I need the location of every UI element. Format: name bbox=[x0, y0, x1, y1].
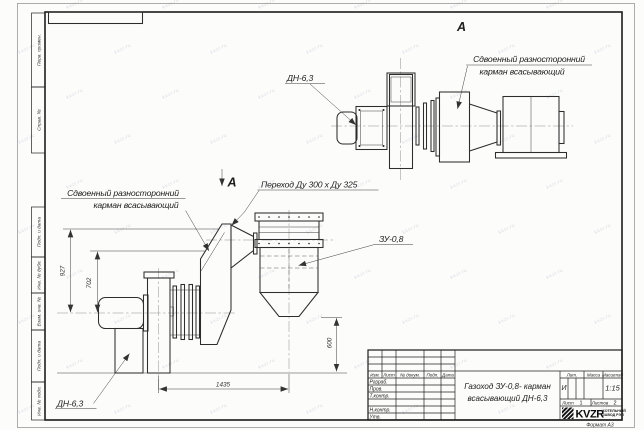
pocket-label-1: Сдвоенный разносторонний bbox=[67, 188, 179, 198]
compensator bbox=[173, 286, 177, 338]
tb-header-doc: № докум. bbox=[400, 372, 420, 377]
collector-base-top bbox=[496, 153, 567, 159]
kvzr-logo-text: KVZR bbox=[576, 409, 605, 421]
tb-row-nkontr: Н.контр. bbox=[370, 407, 391, 413]
view-a: А ДН-6,3 Сдвоенный разносторонний карман… bbox=[285, 20, 592, 182]
drawing-sheet: kvzr.rukvzr.rukvzr.rukvzr.rukvzr.rukvzr.… bbox=[0, 0, 644, 430]
kvzr-logo: KVZR КОТЕЛЬНЫЙ ЗАВОД РЭП bbox=[562, 408, 626, 421]
tb-header-list: Лист bbox=[382, 372, 395, 377]
view-a-pocket-label-1: Сдвоенный разносторонний bbox=[473, 54, 585, 64]
suction-pocket bbox=[201, 224, 232, 345]
tb-header-podp: Подп. bbox=[427, 372, 439, 377]
drawing-canvas: Перв. примен. Справ. № Подп. и дата Инв.… bbox=[0, 0, 644, 430]
transition-label: Переход Ду 300 х Ду 325 bbox=[261, 180, 358, 190]
transition-cone-top bbox=[470, 104, 498, 151]
format-label: Формат А3 bbox=[586, 422, 614, 428]
view-arrow-marker: А bbox=[227, 176, 237, 190]
tb-lit-label: Лит. bbox=[566, 372, 578, 377]
tb-sheets-label: Листов bbox=[591, 400, 609, 405]
view-a-marker: А bbox=[456, 20, 466, 34]
compensator-top bbox=[416, 107, 419, 145]
transition-cone bbox=[231, 225, 254, 268]
tb-sheets-value: 2 bbox=[613, 401, 616, 407]
stamp-inv-podl: Инв. № подл. bbox=[37, 386, 43, 416]
tb-header-izm: Изм. bbox=[370, 372, 380, 377]
company-name-line2: ЗАВОД РЭП bbox=[603, 413, 625, 417]
tb-scale-label: Масштаб bbox=[602, 372, 623, 377]
tb-scale-value: 1:15 bbox=[605, 384, 620, 393]
stamp-vzam-inv: Взам. инв. № bbox=[37, 297, 43, 327]
stamp-podp-data-1: Подп. и дата bbox=[37, 217, 43, 247]
tb-row-prov: Пров. bbox=[370, 386, 383, 392]
stamp-sprav-no: Справ. № bbox=[37, 109, 43, 131]
tb-row-utv: Утв. bbox=[370, 414, 381, 420]
pocket-label-2: карман всасывающий bbox=[93, 200, 178, 210]
stamp-podp-data-2: Подп. и дата bbox=[37, 341, 43, 371]
view-a-pocket-label-2: карман всасывающий bbox=[479, 67, 564, 77]
main-view: А Сдвоенный разносторонний карман всасыв… bbox=[55, 169, 413, 409]
tb-row-tkontr: Т.контр. bbox=[370, 393, 390, 399]
dim-927: 927 bbox=[60, 265, 67, 276]
tb-lit-value: И bbox=[561, 385, 567, 392]
tb-sheet-label: Лист bbox=[561, 400, 574, 405]
tb-title-line2: всасывающий ДН-6,3 bbox=[468, 394, 548, 403]
view-a-fan-label: ДН-6,3 bbox=[286, 73, 314, 83]
kvzr-logo-icon bbox=[562, 408, 574, 420]
dim-1435: 1435 bbox=[216, 382, 231, 389]
stamp-inv-dubl: Инв. № дубл. bbox=[37, 260, 43, 290]
tb-row-razrab: Разраб. bbox=[370, 379, 388, 385]
tb-sheet-value: 1 bbox=[579, 401, 582, 407]
fan-label: ДН-6,3 bbox=[56, 399, 84, 409]
suction-pocket-top bbox=[440, 92, 470, 162]
stamp-perv-primen: Перв. примен. bbox=[37, 34, 43, 66]
tb-header-data: Дата bbox=[441, 372, 454, 377]
tb-mass-label: Масса bbox=[587, 372, 601, 377]
dim-600: 600 bbox=[327, 337, 334, 348]
fan-discharge-duct bbox=[115, 329, 143, 374]
collector-label: ЗУ-0,8 bbox=[379, 234, 404, 244]
title-block: Изм. Лист № докум. Подп. Дата Разраб. Пр… bbox=[368, 350, 626, 428]
dim-702: 702 bbox=[86, 277, 93, 288]
fan-casing-top bbox=[390, 75, 413, 169]
tb-title-line1: Газоход ЗУ-0,8- карман bbox=[464, 382, 551, 391]
margin-stamps: Перв. примен. Справ. № Подп. и дата Инв.… bbox=[32, 13, 46, 420]
top-left-cell bbox=[49, 12, 143, 24]
